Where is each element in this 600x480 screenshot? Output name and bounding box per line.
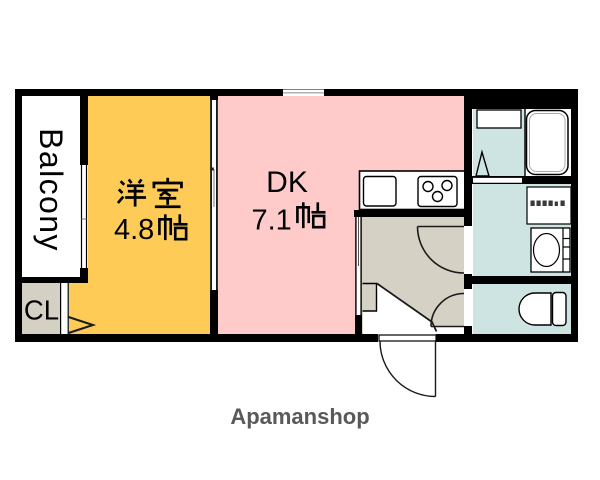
svg-text:Apamanshop: Apamanshop [230,404,369,429]
svg-text:DK: DK [266,166,308,199]
svg-text:7.1: 7.1 [252,205,292,237]
svg-text:CL: CL [24,295,59,326]
svg-text:Balcony: Balcony [33,128,69,252]
svg-text:4.8: 4.8 [114,214,154,246]
